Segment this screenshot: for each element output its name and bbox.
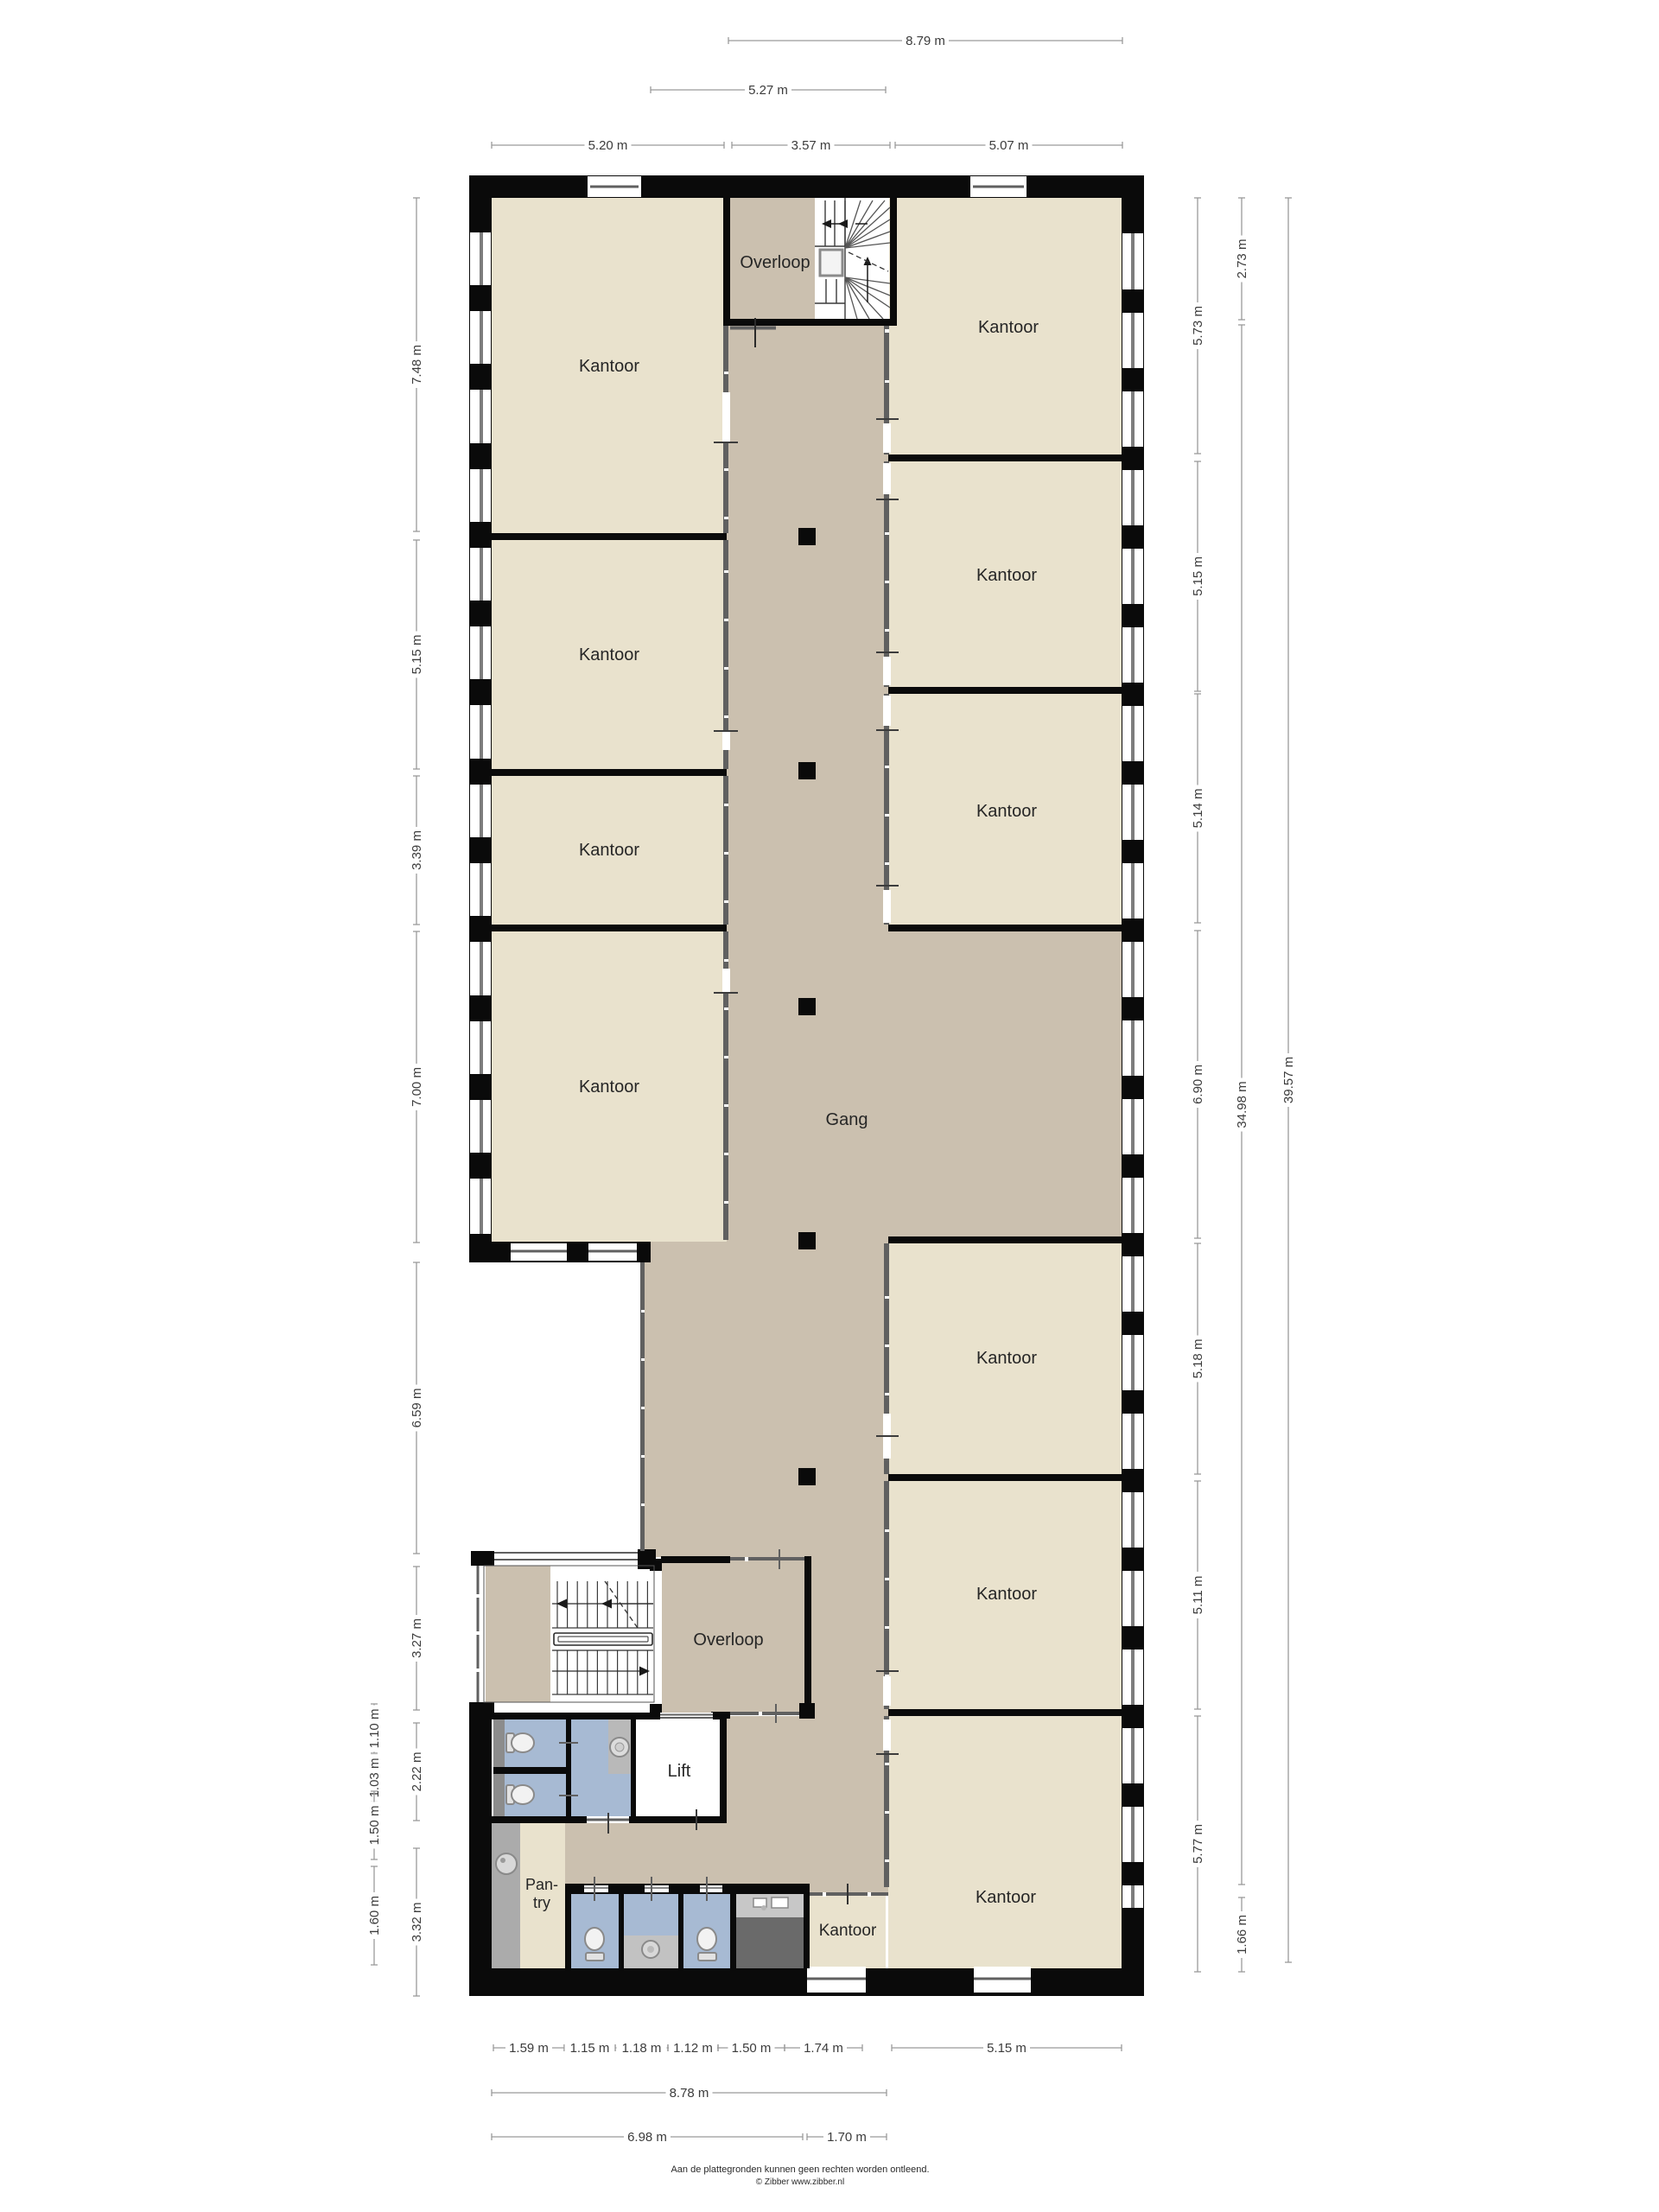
svg-text:8.78 m: 8.78 m	[670, 2086, 709, 2101]
svg-text:Kantoor: Kantoor	[579, 841, 639, 860]
svg-text:try: try	[533, 1894, 550, 1911]
svg-text:Kantoor: Kantoor	[819, 1922, 877, 1940]
svg-text:3.39 m: 3.39 m	[410, 830, 424, 870]
svg-text:Kantoor: Kantoor	[579, 645, 639, 664]
svg-text:Kantoor: Kantoor	[976, 1888, 1036, 1907]
svg-text:1.66 m: 1.66 m	[1235, 1915, 1249, 1955]
svg-text:1.10 m: 1.10 m	[367, 1709, 382, 1749]
svg-text:5.27 m: 5.27 m	[748, 83, 788, 98]
svg-text:39.57 m: 39.57 m	[1281, 1057, 1296, 1103]
svg-text:5.20 m: 5.20 m	[588, 138, 628, 153]
svg-text:Kantoor: Kantoor	[976, 1585, 1037, 1604]
svg-text:5.18 m: 5.18 m	[1191, 1339, 1205, 1379]
svg-text:Lift: Lift	[668, 1762, 691, 1781]
svg-text:6.59 m: 6.59 m	[410, 1389, 424, 1428]
svg-text:1.50 m: 1.50 m	[367, 1806, 382, 1846]
svg-text:Aan de plattegronden kunnen ge: Aan de plattegronden kunnen geen rechten…	[671, 2164, 929, 2175]
svg-text:6.98 m: 6.98 m	[627, 2130, 667, 2145]
svg-text:7.00 m: 7.00 m	[410, 1067, 424, 1107]
svg-text:© Zibber www.zibber.nl: © Zibber www.zibber.nl	[756, 2177, 844, 2187]
svg-text:7.48 m: 7.48 m	[410, 345, 424, 385]
svg-text:5.07 m: 5.07 m	[989, 138, 1029, 153]
svg-text:1.59 m: 1.59 m	[509, 2041, 549, 2056]
svg-text:5.73 m: 5.73 m	[1191, 306, 1205, 346]
svg-text:Kantoor: Kantoor	[976, 802, 1037, 821]
svg-text:Overloop: Overloop	[740, 253, 810, 272]
svg-text:8.79 m: 8.79 m	[906, 34, 945, 48]
svg-text:3.32 m: 3.32 m	[410, 1903, 424, 1942]
svg-text:5.14 m: 5.14 m	[1191, 789, 1205, 829]
svg-text:6.90 m: 6.90 m	[1191, 1065, 1205, 1104]
svg-text:1.18 m: 1.18 m	[622, 2041, 662, 2056]
svg-text:2.22 m: 2.22 m	[410, 1752, 424, 1792]
svg-text:34.98 m: 34.98 m	[1235, 1081, 1249, 1128]
svg-text:1.60 m: 1.60 m	[367, 1896, 382, 1935]
svg-text:Kantoor: Kantoor	[579, 357, 639, 376]
svg-text:3.57 m: 3.57 m	[791, 138, 831, 153]
svg-text:1.15 m: 1.15 m	[570, 2041, 610, 2056]
svg-text:Kantoor: Kantoor	[579, 1077, 639, 1096]
svg-text:Kantoor: Kantoor	[976, 566, 1037, 585]
svg-text:1.12 m: 1.12 m	[673, 2041, 713, 2056]
svg-text:2.73 m: 2.73 m	[1235, 239, 1249, 279]
svg-text:Gang: Gang	[826, 1110, 868, 1129]
svg-text:5.15 m: 5.15 m	[410, 635, 424, 675]
svg-text:Overloop: Overloop	[693, 1630, 763, 1649]
svg-text:5.77 m: 5.77 m	[1191, 1824, 1205, 1864]
svg-text:5.15 m: 5.15 m	[987, 2041, 1027, 2056]
svg-text:5.15 m: 5.15 m	[1191, 556, 1205, 596]
svg-text:1.74 m: 1.74 m	[804, 2041, 843, 2056]
svg-text:5.11 m: 5.11 m	[1191, 1576, 1205, 1615]
svg-text:3.27 m: 3.27 m	[410, 1618, 424, 1658]
svg-text:Kantoor: Kantoor	[978, 318, 1039, 337]
svg-text:1.50 m: 1.50 m	[732, 2041, 772, 2056]
svg-text:1.70 m: 1.70 m	[827, 2130, 867, 2145]
svg-text:Pan-: Pan-	[525, 1876, 558, 1893]
svg-text:Kantoor: Kantoor	[976, 1349, 1037, 1368]
